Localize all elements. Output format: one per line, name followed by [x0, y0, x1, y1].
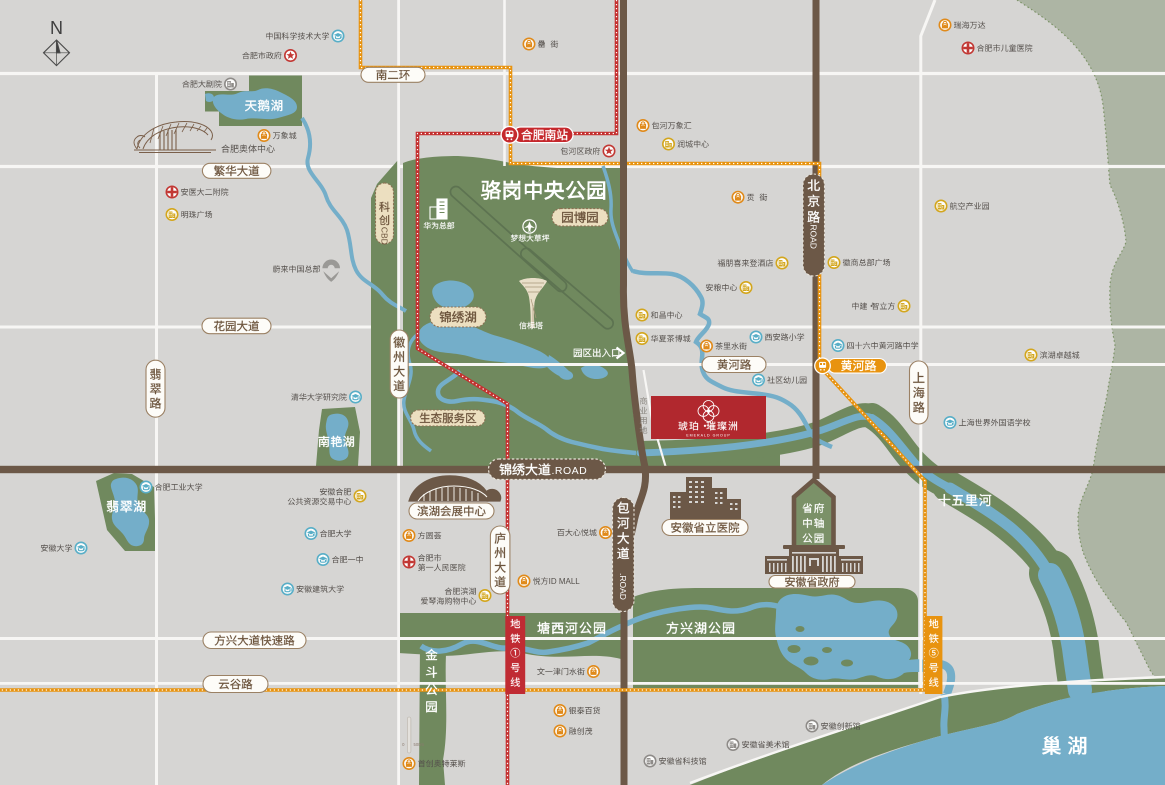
- svg-text:CBD: CBD: [380, 227, 390, 245]
- svg-text:.ROAD: .ROAD: [809, 222, 819, 249]
- svg-text:ID MALL: ID MALL: [549, 577, 581, 586]
- svg-text:N: N: [50, 18, 63, 38]
- svg-text:.ROAD: .ROAD: [552, 465, 588, 477]
- svg-text:.ROAD: .ROAD: [618, 573, 628, 600]
- svg-text:500m: 500m: [414, 742, 425, 747]
- svg-text:EMERALD GROUP: EMERALD GROUP: [686, 433, 731, 437]
